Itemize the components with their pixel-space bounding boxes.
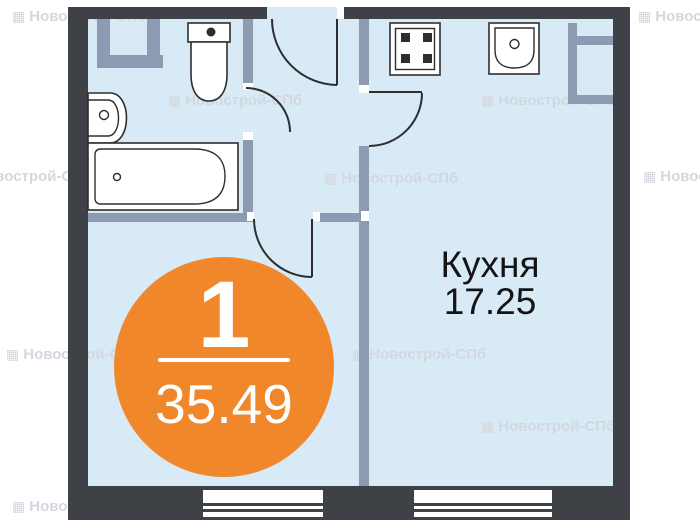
wall-junction-marker [361, 211, 369, 221]
door-jamb [243, 132, 253, 140]
door-jamb [337, 7, 344, 19]
kitchen-label: Кухня 17.25 [380, 246, 600, 320]
window-frame-line [414, 503, 552, 506]
watermark-building-icon: ▦ [638, 8, 651, 25]
kitchen-name: Кухня [380, 246, 600, 283]
window-room [202, 489, 324, 518]
window-frame-line [203, 503, 323, 506]
door-jamb [243, 83, 253, 90]
unit-badge: 1 35.49 [114, 257, 334, 477]
watermark: ▦Новострой-СПб [352, 346, 486, 363]
watermark-building-icon: ▦ [12, 8, 25, 25]
vent-duct-right-stem [568, 23, 577, 104]
partition-kitchen-lower [359, 146, 369, 486]
partition-kitchen-upper [359, 19, 369, 85]
watermark: ▦Новострой-СПб [324, 170, 458, 187]
window-frame-line [203, 509, 323, 512]
vent-duct-left-base [97, 55, 163, 68]
wall-top [68, 7, 630, 19]
watermark-building-icon: ▦ [643, 168, 656, 185]
vent-duct-right-top [577, 36, 613, 45]
watermark-text: Новострой-СПб [660, 168, 700, 185]
door-jamb [313, 212, 320, 221]
watermark-text: Новострой-СПб [369, 346, 486, 363]
partition-bathroom-upper [243, 19, 253, 83]
partition-bathroom-lower [243, 140, 253, 222]
watermark: ▦Новострой-СПб [643, 168, 700, 185]
kitchen-area: 17.25 [380, 283, 600, 320]
partition-room-right [320, 213, 361, 222]
floor-plan: ▦Новострой-СПб▦Новострой-СПб▦Новострой-С… [0, 0, 700, 525]
wall-left [68, 7, 88, 520]
watermark-building-icon: ▦ [6, 346, 19, 363]
vent-duct-left-b [147, 19, 160, 57]
watermark-building-icon: ▦ [324, 170, 337, 187]
unit-number: 1 [114, 265, 334, 365]
wall-right [613, 7, 630, 520]
door-jamb [247, 212, 254, 221]
watermark: ▦Новострой-СПб [168, 92, 302, 109]
watermark-building-icon: ▦ [12, 498, 25, 515]
partition-room-left [88, 213, 247, 222]
watermark: ▦Новострой-СПб [638, 8, 700, 25]
vent-duct-left-a [97, 19, 110, 57]
watermark-building-icon: ▦ [168, 92, 181, 109]
vent-duct-right-base [577, 95, 613, 104]
watermark-text: Новострой-СПб [498, 418, 615, 435]
badge-divider [158, 358, 290, 362]
watermark-text: Новострой-СПб [185, 92, 302, 109]
watermark-building-icon: ▦ [481, 418, 494, 435]
watermark: ▦Новострой-СПб [481, 418, 615, 435]
watermark-building-icon: ▦ [481, 92, 494, 109]
watermark-text: Новострой-СПб [655, 8, 700, 25]
window-frame-line [414, 509, 552, 512]
window-kitchen [413, 489, 553, 518]
unit-total-area: 35.49 [114, 369, 334, 439]
entrance-opening [267, 7, 337, 19]
door-jamb [359, 85, 369, 93]
